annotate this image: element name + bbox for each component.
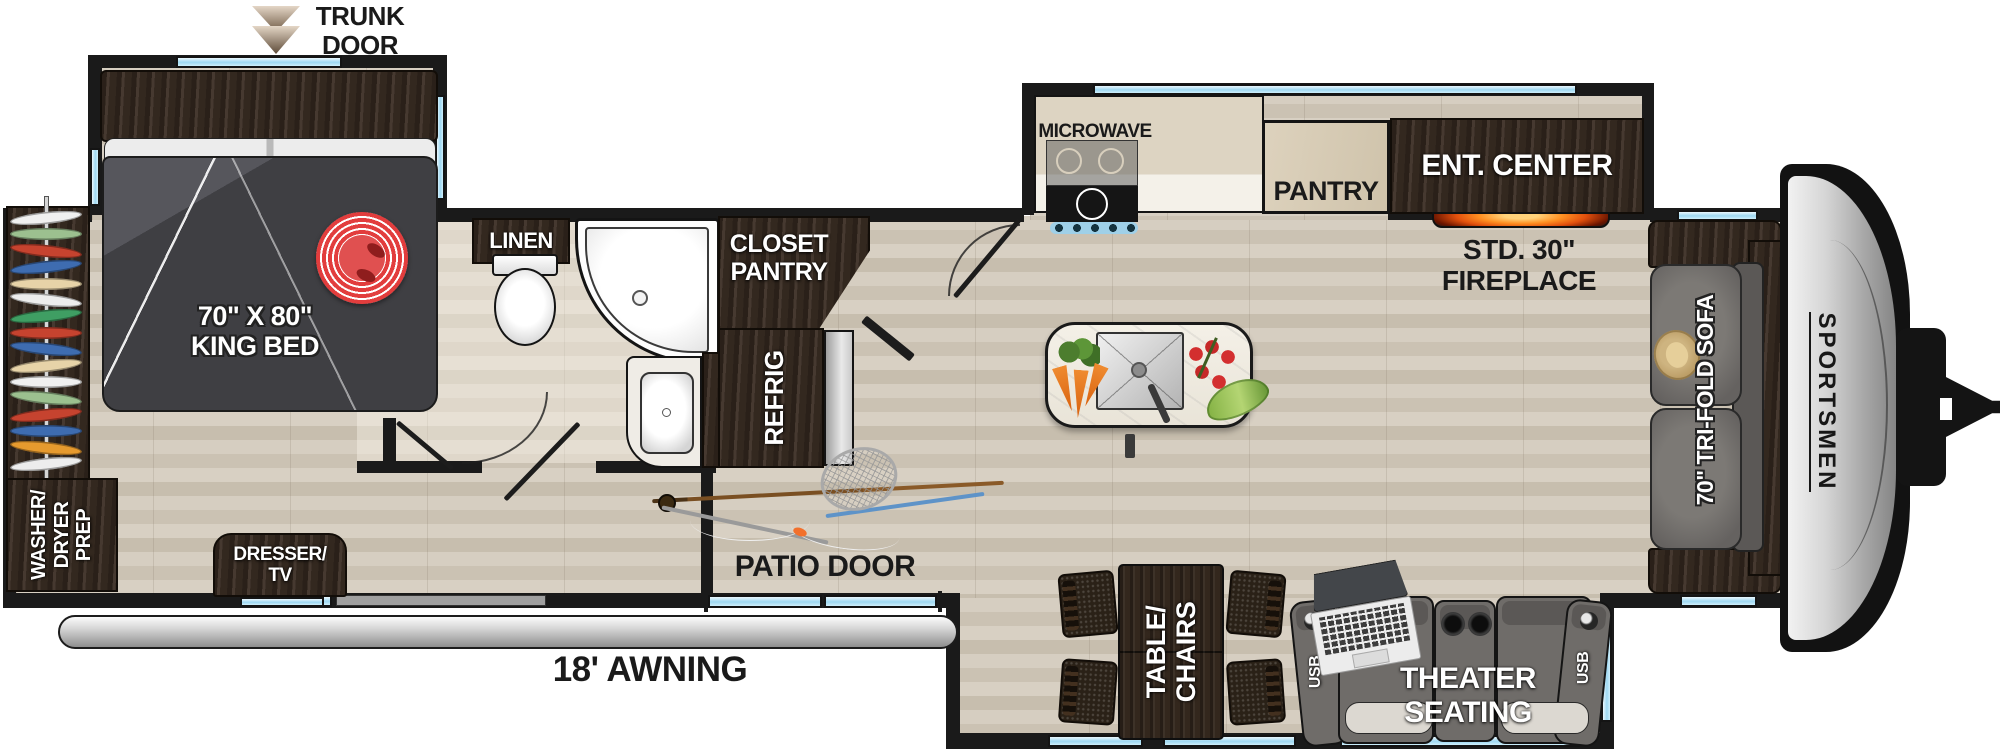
- burner-icon: [1098, 148, 1124, 174]
- kitchen-window: [1093, 84, 1577, 95]
- entry-step-trim: [336, 595, 546, 606]
- hanger-icon: [10, 454, 83, 473]
- dining-chair: [1225, 570, 1286, 639]
- hanger-icon: [10, 241, 83, 260]
- hanger-icon: [10, 356, 83, 375]
- washer-dryer-prep-label: WASHER/DRYERPREP: [27, 475, 97, 595]
- patio-door-tick-right: [938, 591, 942, 612]
- awning: [58, 615, 958, 649]
- wardrobe-hangers: [8, 212, 84, 478]
- patio-door-label: PATIO DOOR: [725, 550, 925, 584]
- hanger-icon: [10, 228, 82, 240]
- bed-headboard: [100, 70, 438, 142]
- hanger-icon: [10, 425, 82, 437]
- pantry-label: PANTRY: [1266, 176, 1386, 206]
- dresser-tv-label: DRESSER/TV: [213, 535, 347, 595]
- hanger-icon: [10, 307, 83, 326]
- dining-chair: [1057, 570, 1118, 639]
- king-bed-label: 70" X 80"KING BED: [160, 292, 350, 370]
- awning-label: 18' AWNING: [545, 650, 755, 689]
- laptop-icon: [1303, 558, 1424, 682]
- usb-label-right: USB: [1575, 645, 1593, 691]
- bath-sink-drain-icon: [662, 408, 671, 417]
- propane-cover: [1896, 328, 1946, 486]
- refrigerator-door: [824, 330, 854, 466]
- tv-icon: [240, 597, 324, 607]
- burner-icon: [1076, 188, 1108, 220]
- brand-logo: SPORTSMEN: [1811, 272, 1837, 532]
- hanger-icon: [10, 339, 83, 358]
- hitch-icon: [1944, 376, 2000, 438]
- toilet-bowl: [494, 268, 556, 346]
- table-chairs-label: TABLE/CHAIRS: [1142, 572, 1200, 732]
- patio-door-tick-left: [704, 591, 708, 612]
- trunk-door-label: TRUNKDOOR: [300, 0, 420, 62]
- faucet-icon: [1125, 434, 1135, 458]
- patio-door-pane-1: [708, 595, 822, 608]
- hanger-icon: [10, 376, 82, 388]
- cupholder-icon: [1468, 612, 1492, 636]
- stove-knobs: [1050, 222, 1138, 234]
- kitchen-slide-wall-left: [1022, 83, 1034, 215]
- hanger-icon: [10, 257, 83, 276]
- bedroom-window-left: [90, 148, 100, 206]
- sink-drain-icon: [1131, 362, 1147, 378]
- closet-pantry-label: CLOSETPANTRY: [720, 226, 838, 290]
- hanger-icon: [10, 278, 82, 290]
- shower-drain-icon: [632, 290, 648, 306]
- theater-seating-label: THEATERSEATING: [1368, 658, 1568, 734]
- hanger-icon: [10, 438, 83, 457]
- hanger-icon: [10, 208, 83, 227]
- cupholder-icon: [1580, 612, 1598, 630]
- ent-center-label: ENT. CENTER: [1390, 118, 1644, 214]
- hanger-icon: [10, 290, 83, 309]
- front-window-bottom: [1680, 595, 1757, 607]
- refrig-label: REFRIG: [760, 323, 790, 473]
- cupholder-icon: [1441, 612, 1465, 636]
- carrots-icon: [1056, 336, 1100, 368]
- trunk-door-arrow-icon: [252, 26, 300, 54]
- dining-chair: [1058, 658, 1118, 726]
- hanger-icon: [10, 389, 83, 408]
- patio-door-pane-2: [824, 595, 937, 608]
- tri-fold-sofa-label: 70" TRI-FOLD SOFA: [1691, 240, 1721, 560]
- fireplace: [1432, 212, 1610, 228]
- hitch-notch: [1940, 398, 1952, 420]
- dining-chair: [1226, 658, 1286, 726]
- hanger-icon: [10, 405, 83, 424]
- fireplace-label: STD. 30"FIREPLACE: [1424, 230, 1614, 300]
- burner-icon: [1056, 148, 1082, 174]
- rv-floorplan: TRUNKDOOR 70" X 80"KING BED WASHER/DRYER…: [0, 0, 2000, 749]
- hanger-icon: [10, 327, 82, 339]
